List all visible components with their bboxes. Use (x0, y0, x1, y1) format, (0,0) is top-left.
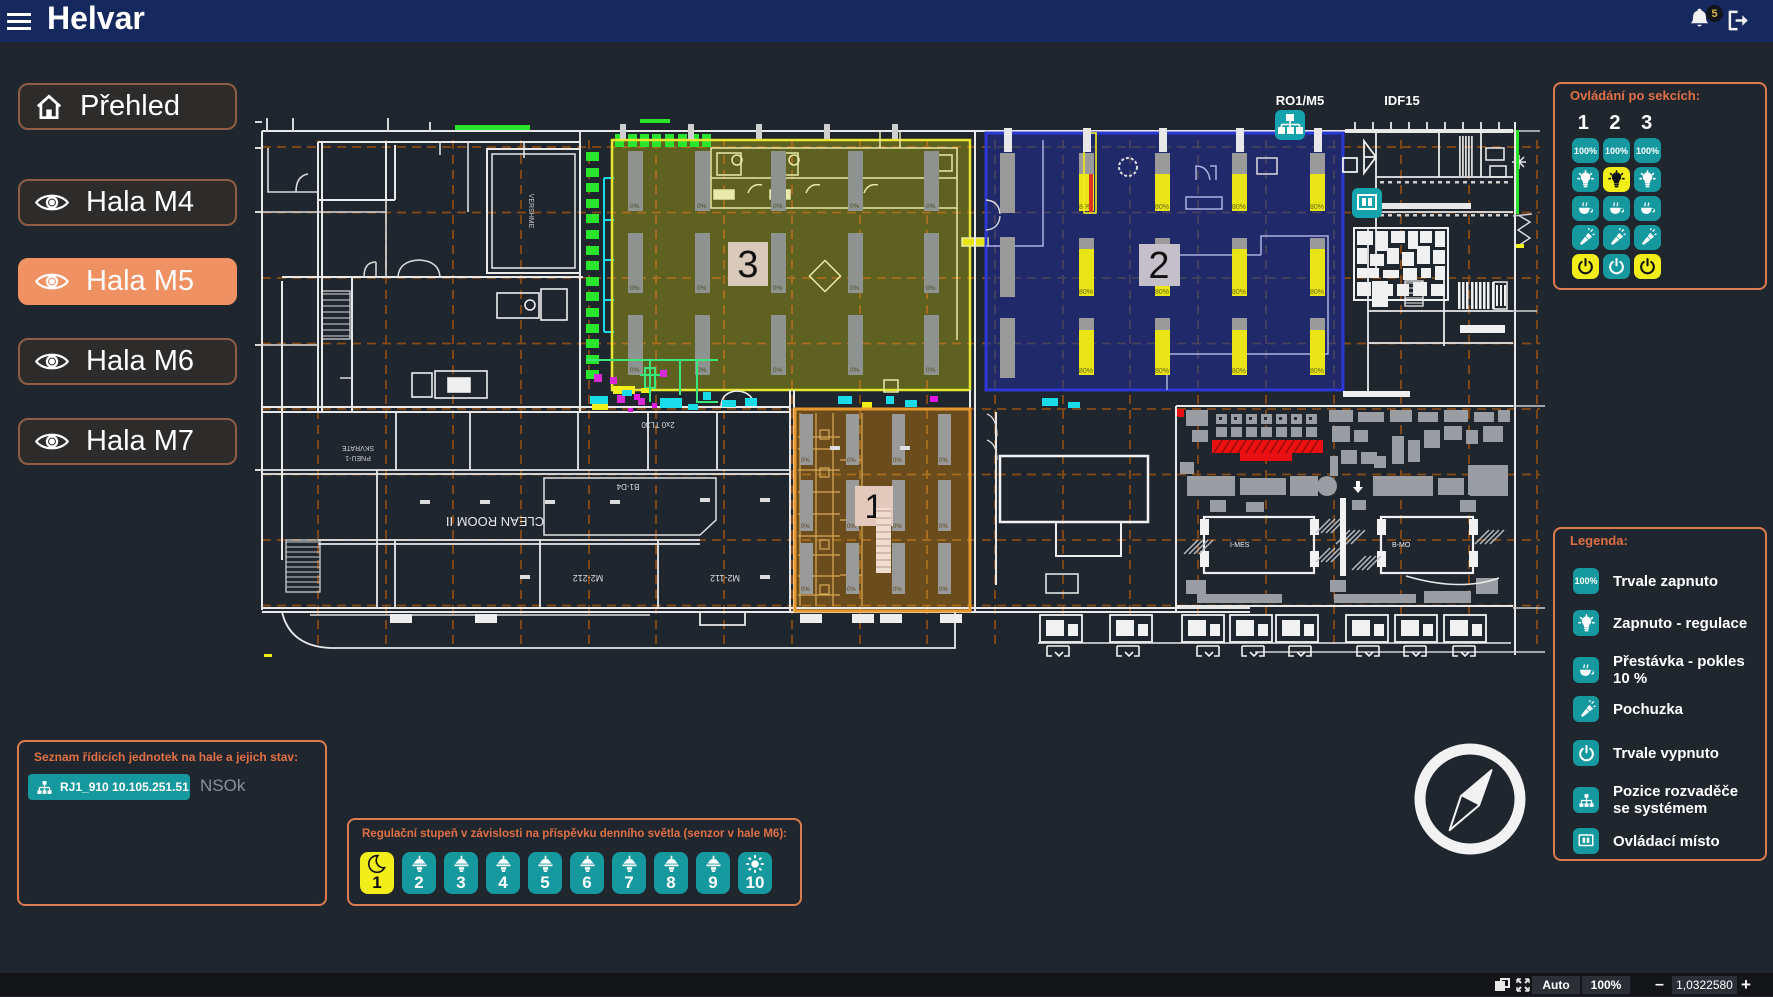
svg-text:80%: 80% (1079, 289, 1093, 296)
svg-text:0%: 0% (893, 524, 902, 530)
svg-text:M2-112: M2-112 (710, 573, 740, 583)
svg-text:M2-212: M2-212 (573, 573, 604, 583)
svg-text:B1-D4: B1-D4 (616, 482, 639, 491)
svg-text:0%: 0% (630, 203, 640, 210)
svg-text:80%: 80% (1310, 368, 1324, 375)
svg-text:IDF15: IDF15 (1384, 93, 1419, 108)
svg-text:0%: 0% (801, 587, 810, 593)
svg-text:80%: 80% (1232, 368, 1246, 375)
svg-text:RO1/M5: RO1/M5 (1276, 93, 1324, 108)
svg-text:0%: 0% (801, 458, 810, 464)
svg-text:0%: 0% (893, 587, 902, 593)
svg-text:0%: 0% (850, 367, 860, 374)
svg-text:0%: 0% (801, 524, 810, 530)
svg-text:80%: 80% (1232, 289, 1246, 296)
svg-text:80%: 80% (1310, 289, 1324, 296)
svg-text:SKVRATE: SKVRATE (342, 444, 374, 451)
svg-text:0%: 0% (630, 367, 640, 374)
svg-text:2x0 TL30: 2x0 TL30 (641, 420, 675, 429)
svg-text:80%: 80% (1155, 204, 1169, 211)
svg-text:0%: 0% (939, 587, 948, 593)
svg-text:3: 3 (737, 244, 758, 286)
svg-text:80%: 80% (1232, 204, 1246, 211)
svg-text:0%: 0% (926, 285, 936, 292)
svg-text:0%: 0% (847, 587, 856, 593)
svg-text:0%: 0% (697, 203, 707, 210)
svg-text:0%: 0% (697, 367, 707, 374)
svg-text:0%: 0% (893, 458, 902, 464)
svg-text:0%: 0% (697, 285, 707, 292)
svg-text:0%: 0% (773, 203, 783, 210)
svg-text:80%: 80% (1155, 289, 1169, 296)
svg-text:PNEU-1: PNEU-1 (345, 454, 371, 461)
svg-text:I-MES: I-MES (1230, 542, 1250, 549)
svg-text:0%: 0% (939, 524, 948, 530)
svg-text:2: 2 (1148, 245, 1169, 287)
svg-text:B-MO: B-MO (1392, 542, 1411, 549)
svg-text:0%: 0% (847, 524, 856, 530)
svg-text:0%: 0% (850, 285, 860, 292)
svg-text:VERSHME: VERSHME (527, 194, 534, 229)
svg-text:0%: 0% (773, 285, 783, 292)
svg-text:0%: 0% (773, 367, 783, 374)
svg-text:0%: 0% (850, 203, 860, 210)
svg-text:80%: 80% (1155, 368, 1169, 375)
svg-text:80%: 80% (1079, 368, 1093, 375)
svg-text:0%: 0% (939, 458, 948, 464)
svg-text:0%: 0% (630, 285, 640, 292)
svg-text:CLEAN ROOM II: CLEAN ROOM II (446, 514, 544, 529)
svg-text:0%: 0% (926, 203, 936, 210)
svg-text:80%: 80% (1310, 204, 1324, 211)
svg-text:0%: 0% (847, 458, 856, 464)
svg-text:0%: 0% (926, 367, 936, 374)
